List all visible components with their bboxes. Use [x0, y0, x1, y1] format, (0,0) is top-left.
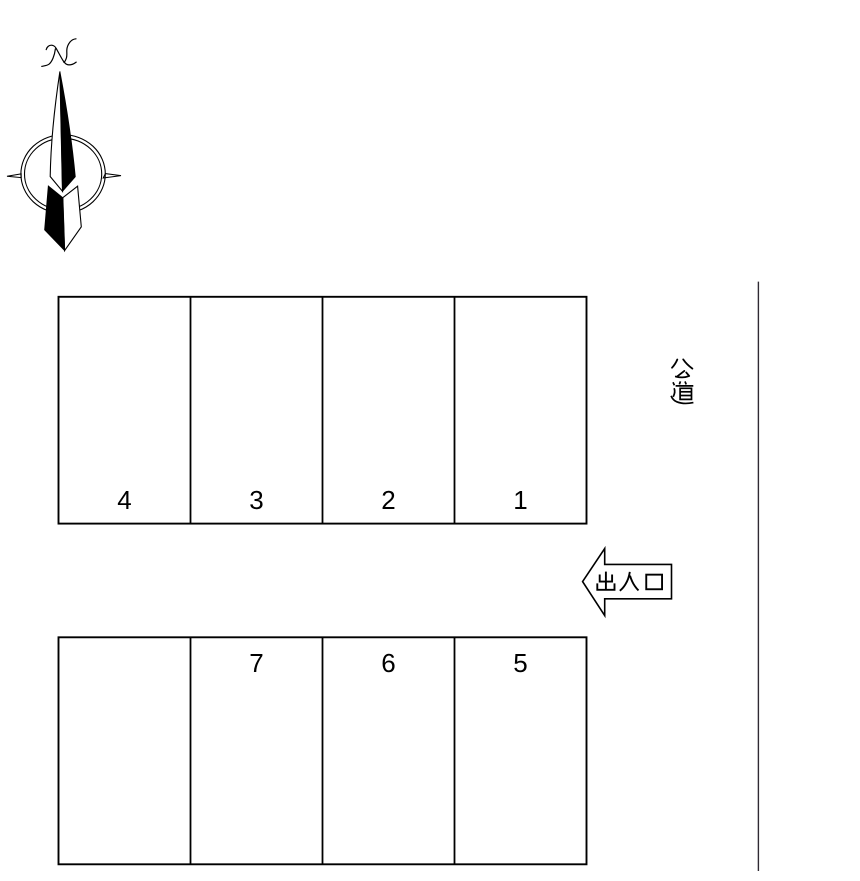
- svg-text:5: 5: [513, 648, 527, 678]
- svg-text:4: 4: [117, 485, 131, 515]
- svg-text:7: 7: [249, 648, 263, 678]
- svg-text:3: 3: [249, 485, 263, 515]
- svg-text:2: 2: [381, 485, 395, 515]
- svg-text:6: 6: [381, 648, 395, 678]
- svg-text:1: 1: [513, 485, 527, 515]
